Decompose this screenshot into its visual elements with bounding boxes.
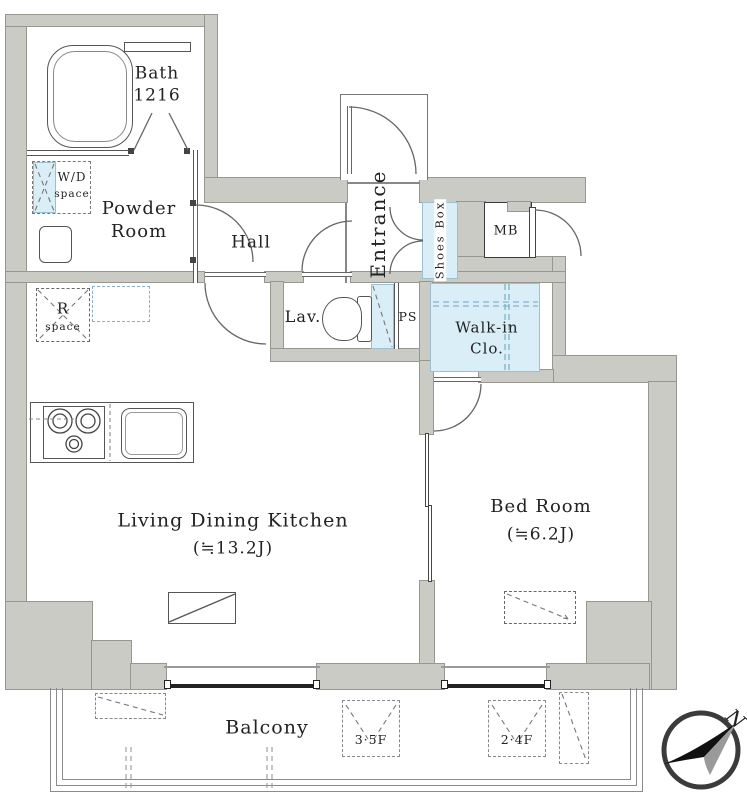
stove-burner <box>81 414 95 428</box>
door-arc-shoes-upper <box>390 207 423 240</box>
hatch-diagonal <box>169 594 235 622</box>
ldk-size-label: (≒13.2J) <box>193 541 273 558</box>
r-space-label: R <box>57 302 69 317</box>
powder-room-label-2: Room <box>111 223 167 241</box>
shoes-box-label: Shoes Box <box>434 199 446 281</box>
r-space-label-2: space <box>45 322 80 333</box>
entrance-label: Entrance <box>368 170 388 279</box>
kitchen-divider-dash <box>29 404 110 461</box>
door-arc-walkin <box>434 384 481 431</box>
wd-space-cross <box>35 164 54 211</box>
door-arc-mb <box>535 210 581 256</box>
door-arc-entrance <box>349 107 416 174</box>
stove-burner <box>48 409 72 433</box>
bedroom-size-label: (≒6.2J) <box>507 527 575 544</box>
hall-label: Hall <box>231 235 271 252</box>
stove-burner-small <box>66 436 82 452</box>
stove-burner <box>76 409 100 433</box>
bath-size-label: 1216 <box>133 88 180 105</box>
ac-35f-label: 3·5F <box>355 734 388 747</box>
door-arc-ldk <box>205 283 266 344</box>
wd-label-2: space <box>54 189 89 200</box>
walkin-closet-label-2: Clo. <box>470 342 504 357</box>
walkin-hanger-pipe <box>433 302 538 306</box>
walkin-closet-label: Walk-in <box>455 321 518 336</box>
plan-linework <box>0 0 747 800</box>
ac-24f-label: 2·4F <box>501 734 534 747</box>
lav-label: Lav. <box>285 309 321 325</box>
ldk-label: Living Dining Kitchen <box>117 512 348 531</box>
mb-label: MB <box>494 225 519 238</box>
bedroom-box-diagonal <box>507 594 568 619</box>
lav-strip-diagonal <box>373 286 392 347</box>
powder-room-label: Powder <box>102 200 176 218</box>
wd-label: W/D <box>58 171 87 183</box>
ps-label: PS <box>399 311 418 324</box>
bath-label: Bath <box>135 66 179 83</box>
stove-burner <box>53 414 67 428</box>
balcony-box-diagonal <box>562 694 586 760</box>
balcony-drain-marks <box>126 747 272 789</box>
door-arc-lav <box>302 221 352 271</box>
balcony-label: Balcony <box>225 719 308 738</box>
bath-folding-door <box>134 113 188 150</box>
ac-box-diagonal <box>98 697 163 715</box>
bedroom-label: Bed Room <box>490 498 591 516</box>
door-arc-shoes-lower <box>390 241 423 274</box>
floor-plan: Bath 1216 W/D space Powder Room Hall Ent… <box>0 0 747 800</box>
stove-burner-small <box>70 440 79 449</box>
